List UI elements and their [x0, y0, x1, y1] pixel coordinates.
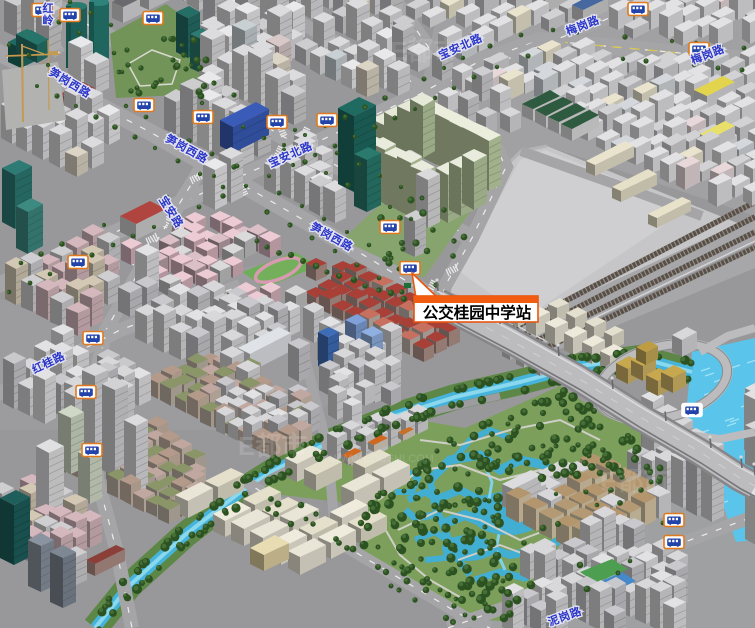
svg-text:红岭: 红岭 — [43, 1, 54, 27]
svg-text:公交桂园中学站: 公交桂园中学站 — [423, 303, 532, 322]
svg-text:E都市: E都市 — [238, 431, 307, 461]
svg-text:WWW.EDUSHI.COM: WWW.EDUSHI.COM — [330, 453, 434, 465]
svg-text:E都市: E都市 — [600, 466, 669, 496]
